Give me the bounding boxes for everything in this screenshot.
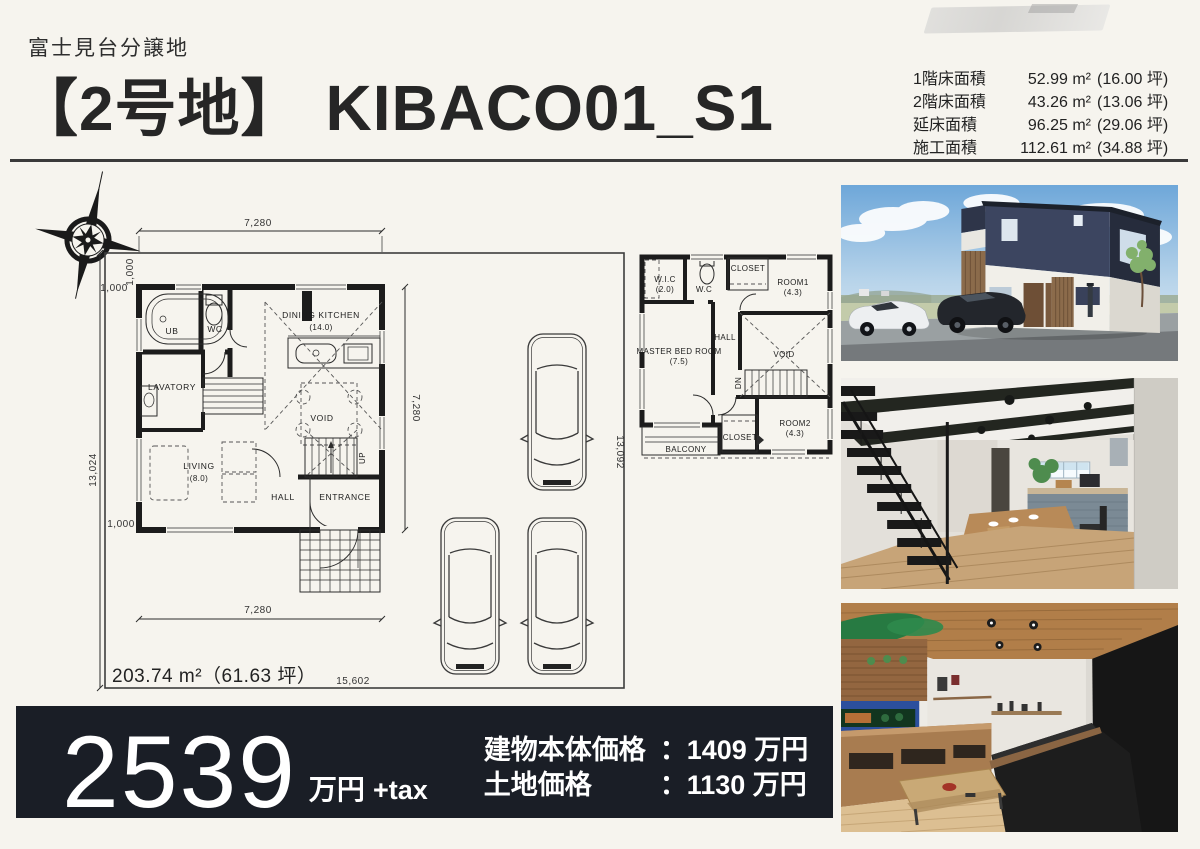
dim-right: 7,280: [410, 394, 421, 422]
room-label-room1: ROOM1: [777, 278, 808, 287]
stairs-down: [745, 370, 807, 397]
closet-top: [728, 258, 768, 290]
room-size-wic: (2.0): [656, 285, 674, 294]
land-price-label: 土地価格: [484, 768, 660, 804]
building-price-label: 建物本体価格: [484, 733, 660, 769]
room-label-entrance: ENTRANCE: [319, 492, 371, 502]
stairs-up: [305, 438, 357, 477]
price-tax-label: +tax: [373, 775, 428, 806]
stairs-landing: [203, 378, 263, 414]
room-label-wic: W.I.C: [654, 275, 676, 284]
floor-plan-1f: UB WC LAVATORY DINING KITCHEN (14.0) VOI…: [135, 283, 386, 592]
parked-cars: [434, 334, 593, 674]
price-breakdown: 建物本体価格：1409 万円 土地価格：1130 万円: [484, 733, 809, 804]
land-price-row: 土地価格：1130 万円: [484, 768, 809, 804]
room-label-dn: DN: [734, 377, 743, 389]
room-label-wc-2f: W.C: [696, 285, 712, 294]
dim-bottom: 7,280: [244, 605, 272, 616]
price-bar: 2539 万円 +tax 建物本体価格：1409 万円 土地価格：1130 万円: [16, 706, 833, 818]
room-label-ub: UB: [165, 326, 178, 336]
colon: ：: [660, 770, 687, 800]
entrance-porch: [300, 526, 380, 592]
room-label-closet-top: CLOSET: [731, 264, 765, 273]
flyer-page: 富士見台分譲地 【2号地】 KIBACO01_S1 1階床面積 52.99 m²…: [0, 0, 1200, 849]
car-outline: [434, 518, 506, 674]
kitchen-counter: [288, 336, 380, 368]
photo-exterior-rendering: [841, 185, 1178, 361]
photo-interior-dining: [841, 378, 1178, 589]
land-price-value: 1130 万円: [687, 770, 807, 800]
compass-icon: [23, 160, 156, 310]
dim-offset-a: 1,000: [100, 283, 128, 294]
building-price-value: 1409 万円: [687, 735, 809, 765]
room-label-wc: WC: [207, 324, 222, 334]
room-label-closet-bottom: CLOSET: [723, 433, 757, 442]
floor-plan-2f: W.I.C (2.0) W.C CLOSET ROOM1 (4.3) HALL …: [636, 253, 834, 458]
room-label-void-2f: VOID: [773, 350, 794, 359]
room-label-lavatory: LAVATORY: [148, 382, 196, 392]
dim-offset-c: 1,000: [107, 519, 135, 530]
photo-interior-living: [841, 603, 1178, 832]
car-outline: [521, 518, 593, 674]
room-size-dining-kitchen: (14.0): [309, 323, 332, 332]
toilet-2f: [700, 258, 714, 284]
room-size-master: (7.5): [670, 357, 688, 366]
living-furniture: [150, 442, 256, 502]
room-size-room2: (4.3): [786, 429, 804, 438]
dim-site-right: 13,092: [614, 435, 625, 469]
room-label-up: UP: [358, 452, 367, 464]
price-unit-label: 万円: [309, 768, 365, 808]
dim-offset-b: 1,000: [125, 258, 136, 286]
dim-left: 13,024: [88, 453, 99, 487]
dim-site-bottom: 15,602: [336, 676, 370, 687]
room-size-living: (8.0): [190, 474, 208, 483]
room-label-balcony: BALCONY: [665, 445, 706, 454]
room-label-void: VOID: [310, 413, 333, 423]
room-label-living: LIVING: [183, 461, 214, 471]
bathtub: [146, 294, 228, 344]
room-label-hall: HALL: [271, 492, 295, 502]
lot-area-text: 203.74 m²（61.63 坪）: [112, 665, 316, 687]
total-price: 2539: [62, 728, 297, 818]
room-label-hall-2f: HALL: [714, 333, 736, 342]
room-label-master: MASTER BED ROOM: [636, 347, 721, 356]
room-label-dining-kitchen: DINING KITCHEN: [282, 310, 360, 320]
room-size-room1: (4.3): [784, 288, 802, 297]
price-unit: 万円 +tax: [309, 768, 428, 808]
room-label-room2: ROOM2: [779, 419, 810, 428]
colon: ：: [660, 735, 687, 765]
car-outline: [521, 334, 593, 490]
door-arcs: [203, 330, 336, 528]
building-price-row: 建物本体価格：1409 万円: [484, 733, 809, 769]
dim-top: 7,280: [244, 218, 272, 229]
site-plan: 7,280 1,000 1,000 13,024 7,280 1,000 7,2…: [88, 218, 625, 691]
